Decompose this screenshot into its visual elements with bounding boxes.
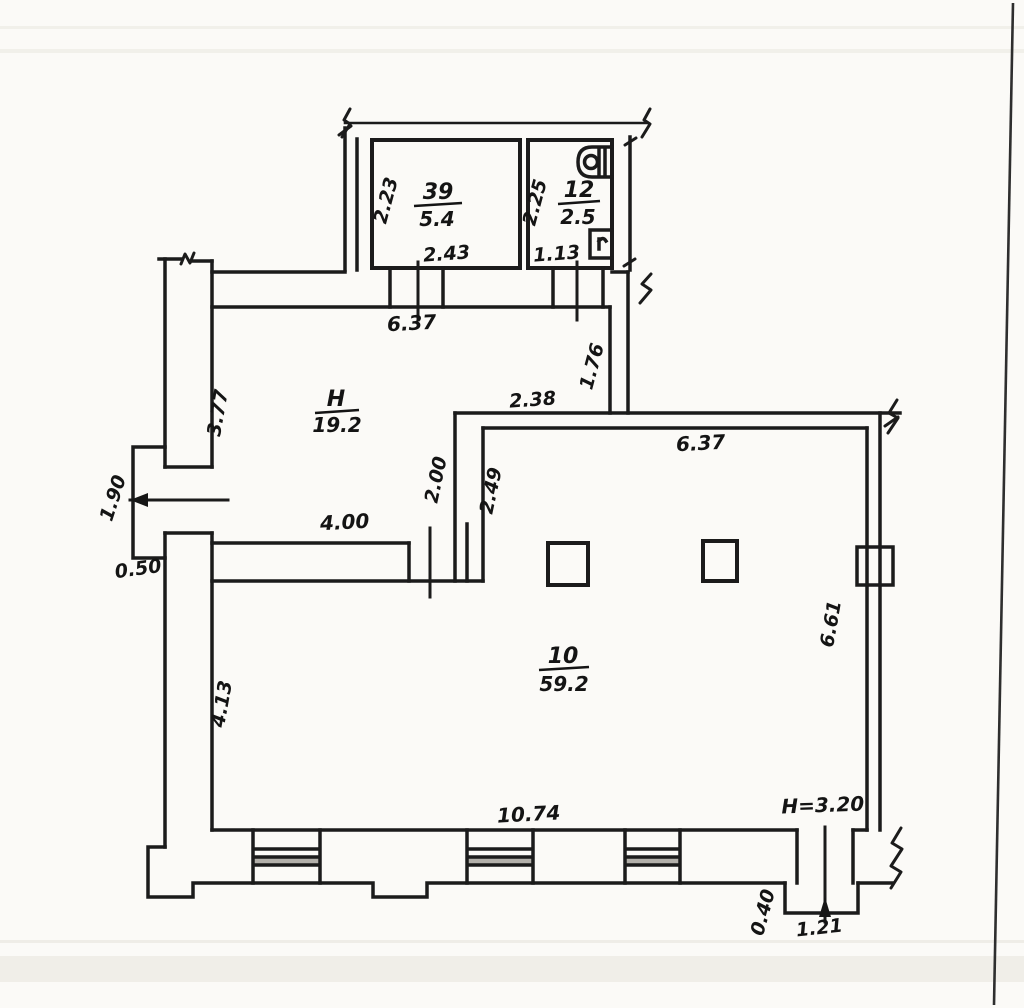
dim-room39-width: 2.43 bbox=[422, 241, 470, 266]
dim-mid-wall-width: 2.38 bbox=[508, 387, 556, 412]
dim-left-porch-depth: 0.50 bbox=[113, 555, 162, 583]
window bbox=[253, 830, 320, 883]
floor-plan-sheet: 39 5.4 12 2.5 H 19.2 10 59.2 2.23 2.43 2… bbox=[0, 0, 1024, 1008]
fraction-bar bbox=[414, 203, 462, 206]
window bbox=[467, 830, 533, 883]
fraction-bar bbox=[539, 667, 589, 670]
columns bbox=[548, 541, 737, 585]
bottom-entry-arrowhead bbox=[819, 897, 831, 917]
dim-room12-depth: 2.25 bbox=[519, 177, 552, 228]
room-10-label: 10 59.2 bbox=[539, 644, 589, 696]
ceiling-height-note: H=3.20 bbox=[781, 792, 865, 819]
room-area: 5.4 bbox=[419, 207, 454, 231]
dim-room10-top-width: 6.37 bbox=[675, 430, 726, 457]
room-area: 59.2 bbox=[539, 672, 588, 696]
dim-bottom-entry-width: 1.21 bbox=[795, 915, 844, 942]
hall-label: H 19.2 bbox=[312, 387, 361, 437]
room-39-label: 39 5.4 bbox=[414, 180, 462, 231]
paper-edge-line bbox=[994, 3, 1013, 1005]
floor-plan-drawing: 39 5.4 12 2.5 H 19.2 10 59.2 2.23 2.43 2… bbox=[0, 0, 1024, 1008]
dim-corridor-depth: 1.76 bbox=[576, 341, 609, 392]
dim-hall-bottom-width: 4.00 bbox=[318, 509, 370, 536]
dim-room10-bottom-width: 10.74 bbox=[496, 800, 560, 827]
bottom-porch-outline bbox=[785, 883, 858, 913]
dim-hall-left-depth: 3.77 bbox=[203, 387, 233, 438]
dim-bottom-porch-depth: 0.40 bbox=[747, 887, 780, 938]
dim-hall-top-width: 6.37 bbox=[386, 310, 437, 337]
dim-room10-right-depth: 6.61 bbox=[816, 599, 846, 649]
wall-pilaster bbox=[857, 547, 893, 585]
room-number: 10 bbox=[548, 644, 579, 669]
dim-passage-depth: 2.00 bbox=[420, 455, 451, 505]
column bbox=[548, 543, 588, 585]
room-12-label: 12 2.5 bbox=[558, 178, 600, 229]
toilet-icon bbox=[578, 147, 612, 177]
room-number: 39 bbox=[423, 180, 454, 205]
scan-artifacts bbox=[0, 3, 1024, 1005]
sink-icon bbox=[590, 230, 612, 258]
window bbox=[625, 830, 680, 883]
dim-room12-width: 1.13 bbox=[532, 241, 580, 266]
room-number: 12 bbox=[564, 178, 595, 203]
break-marks bbox=[181, 109, 902, 888]
room-area: 2.5 bbox=[560, 205, 595, 229]
room-area: 19.2 bbox=[312, 413, 361, 437]
room-number: H bbox=[327, 387, 345, 412]
dim-room10-upper-depth: 2.49 bbox=[475, 466, 506, 516]
dim-left-entry-width: 1.90 bbox=[96, 472, 131, 523]
column bbox=[703, 541, 737, 581]
windows bbox=[253, 830, 680, 883]
dimension-lines bbox=[130, 123, 825, 922]
dim-room39-depth: 2.23 bbox=[370, 175, 403, 226]
